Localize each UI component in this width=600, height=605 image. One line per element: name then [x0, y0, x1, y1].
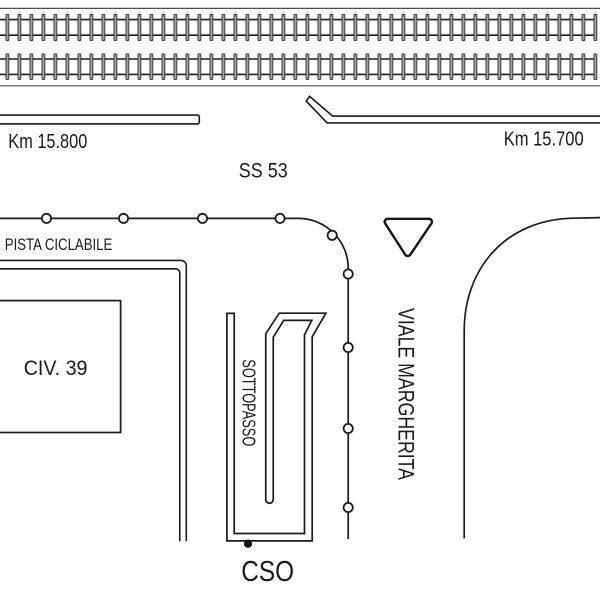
- svg-text:CSO: CSO: [241, 556, 294, 588]
- svg-text:CIV. 39: CIV. 39: [24, 356, 88, 380]
- svg-text:PISTA CICLABILE: PISTA CICLABILE: [5, 235, 113, 254]
- svg-text:SOTTOPASSO: SOTTOPASSO: [238, 359, 258, 446]
- svg-text:SS 53: SS 53: [239, 158, 288, 182]
- svg-text:Km 15.700: Km 15.700: [504, 128, 584, 150]
- svg-text:VIALE MARGHERITA: VIALE MARGHERITA: [394, 308, 419, 480]
- svg-text:Km 15.800: Km 15.800: [8, 131, 87, 153]
